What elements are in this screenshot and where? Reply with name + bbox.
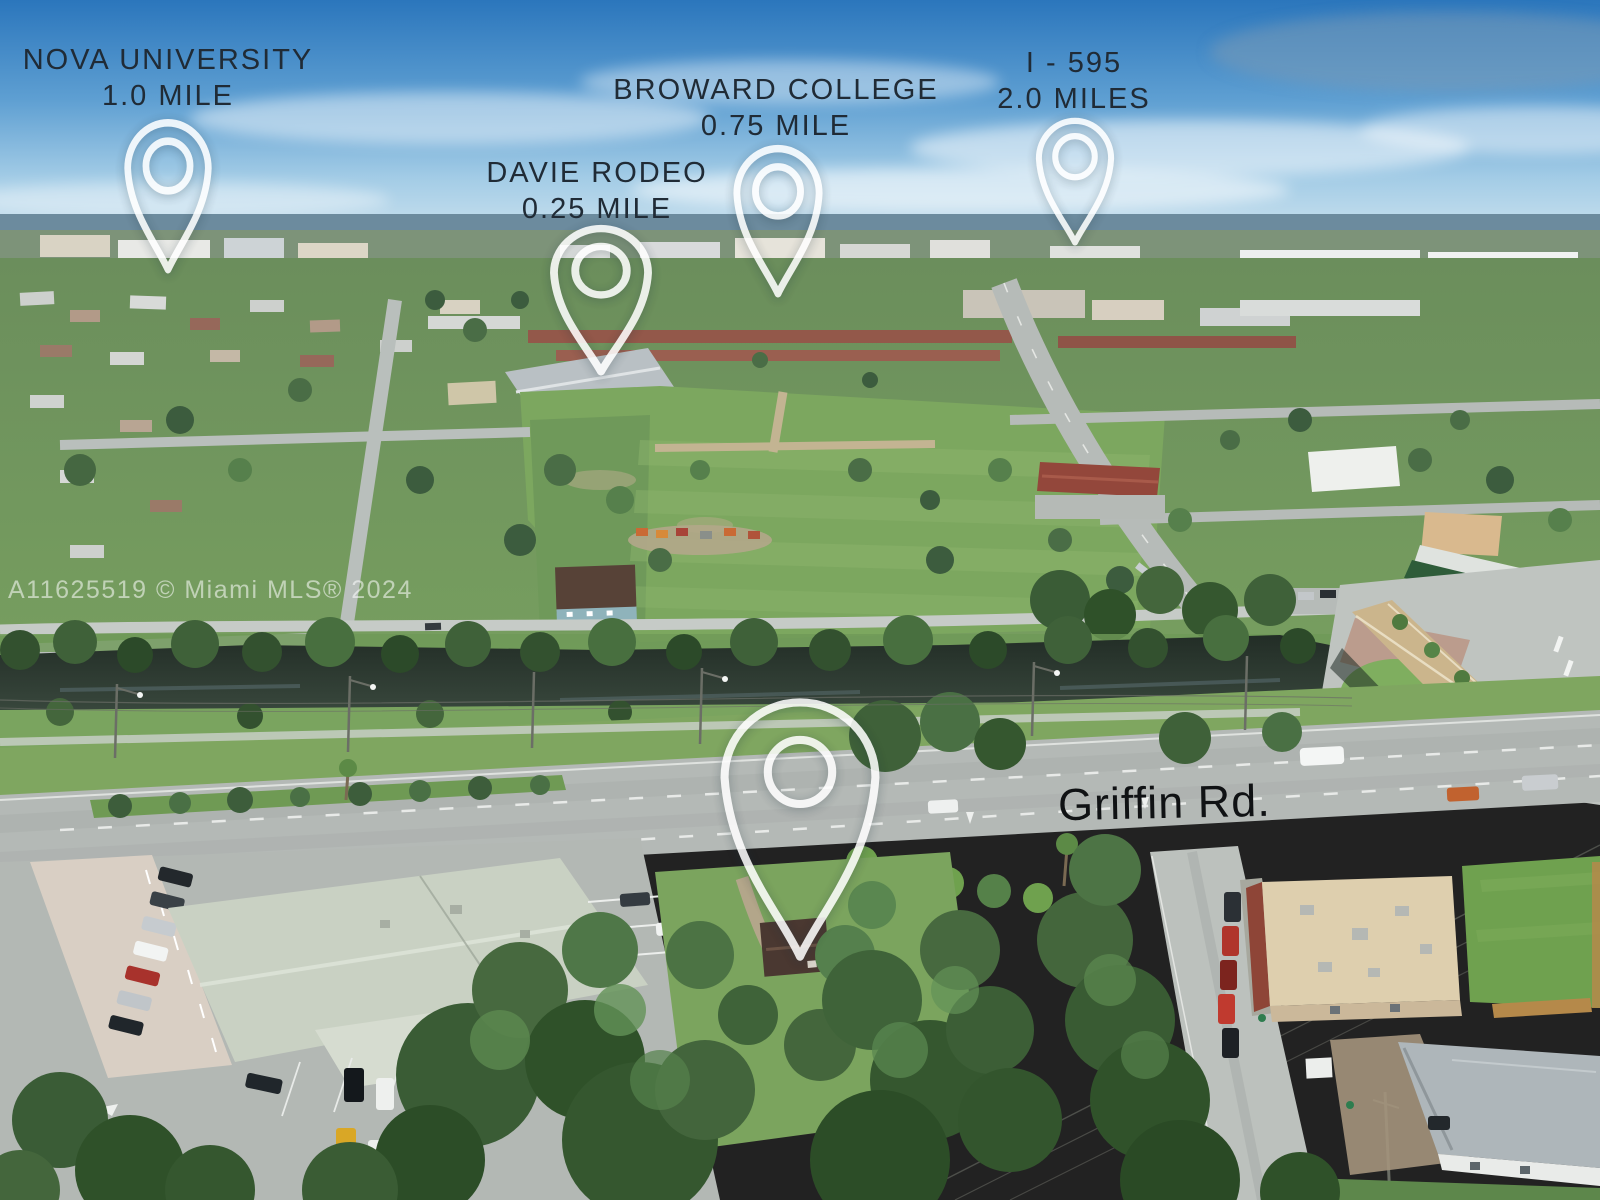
mls-watermark: A11625519 © Miami MLS® 2024 [8,576,413,605]
map-pin-icon-davie-rodeo [545,218,657,376]
marker-title: NOVA UNIVERSITY [23,42,314,78]
aerial-photo: A11625519 © Miami MLS® 2024 Griffin Rd. … [0,0,1600,1200]
marker-label-nova-university: NOVA UNIVERSITY 1.0 MILE [23,42,314,114]
marker-title: DAVIE RODEO [486,155,707,191]
marker-title: I - 595 [997,45,1150,81]
marker-label-i-595: I - 595 2.0 MILES [997,45,1150,117]
road-label-griffin: Griffin Rd. [1057,775,1271,831]
map-pin-icon-i-595 [1032,112,1118,246]
marker-title: BROWARD COLLEGE [613,72,938,108]
map-pin-icon-subject-property [708,686,892,964]
map-pin-icon-nova-university [120,112,216,274]
marker-label-broward-college: BROWARD COLLEGE 0.75 MILE [613,72,938,144]
map-pin-icon-broward-college [729,138,827,298]
marker-label-davie-rodeo: DAVIE RODEO 0.25 MILE [486,155,707,227]
marker-distance: 1.0 MILE [23,78,314,114]
